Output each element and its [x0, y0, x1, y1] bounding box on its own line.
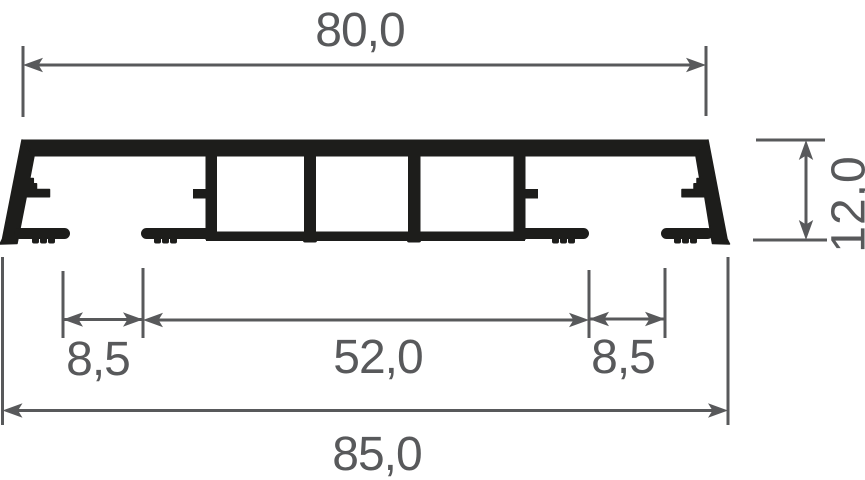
svg-text:85,0: 85,0 [332, 428, 421, 480]
svg-text:8,5: 8,5 [66, 333, 130, 386]
svg-text:8,5: 8,5 [591, 331, 655, 384]
svg-text:52,0: 52,0 [333, 331, 422, 384]
svg-text:12,0: 12,0 [823, 155, 865, 252]
svg-text:80,0: 80,0 [315, 4, 404, 57]
